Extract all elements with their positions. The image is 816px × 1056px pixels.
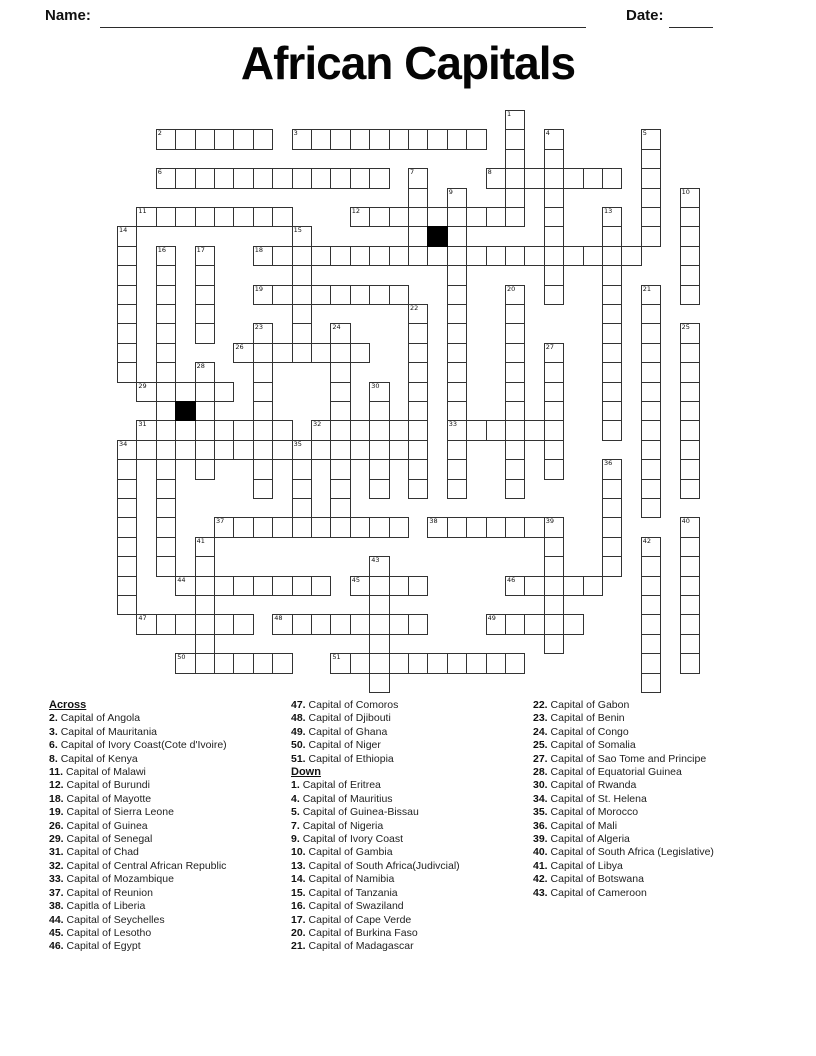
grid-cell[interactable] xyxy=(117,537,137,557)
grid-cell[interactable] xyxy=(505,149,525,169)
grid-cell[interactable] xyxy=(602,304,622,324)
grid-cell[interactable] xyxy=(583,168,603,188)
grid-cell[interactable] xyxy=(214,168,234,188)
grid-cell[interactable] xyxy=(156,323,176,343)
grid-cell[interactable]: 27 xyxy=(544,343,564,363)
grid-cell[interactable]: 22 xyxy=(408,304,428,324)
grid-cell[interactable] xyxy=(602,382,622,402)
grid-cell[interactable]: 17 xyxy=(195,246,215,266)
grid-cell[interactable] xyxy=(156,498,176,518)
grid-cell[interactable] xyxy=(544,440,564,460)
grid-cell[interactable] xyxy=(408,653,428,673)
grid-cell[interactable] xyxy=(175,614,195,634)
grid-cell[interactable]: 34 xyxy=(117,440,137,460)
grid-cell[interactable] xyxy=(195,304,215,324)
grid-cell[interactable] xyxy=(602,420,622,440)
grid-cell[interactable] xyxy=(117,556,137,576)
grid-cell[interactable] xyxy=(389,440,409,460)
grid-cell[interactable] xyxy=(117,517,137,537)
grid-cell[interactable] xyxy=(156,207,176,227)
grid-cell[interactable] xyxy=(524,614,544,634)
grid-cell[interactable] xyxy=(505,343,525,363)
grid-cell[interactable] xyxy=(272,517,292,537)
grid-cell[interactable] xyxy=(408,129,428,149)
grid-cell[interactable] xyxy=(214,614,234,634)
grid-cell[interactable]: 9 xyxy=(447,188,467,208)
grid-cell[interactable] xyxy=(447,459,467,479)
grid-cell[interactable]: 19 xyxy=(253,285,273,305)
grid-cell[interactable]: 24 xyxy=(330,323,350,343)
grid-cell[interactable] xyxy=(389,653,409,673)
grid-cell[interactable] xyxy=(427,653,447,673)
grid-cell[interactable] xyxy=(350,420,370,440)
grid-cell[interactable] xyxy=(447,401,467,421)
grid-cell[interactable]: 31 xyxy=(136,420,156,440)
grid-cell[interactable] xyxy=(156,459,176,479)
grid-cell[interactable] xyxy=(195,285,215,305)
grid-cell[interactable] xyxy=(680,595,700,615)
grid-cell[interactable] xyxy=(563,168,583,188)
grid-cell[interactable] xyxy=(447,362,467,382)
grid-cell[interactable] xyxy=(680,479,700,499)
grid-cell[interactable] xyxy=(583,576,603,596)
grid-cell[interactable] xyxy=(350,285,370,305)
grid-cell[interactable] xyxy=(602,362,622,382)
grid-cell[interactable] xyxy=(544,285,564,305)
grid-cell[interactable] xyxy=(505,207,525,227)
grid-cell[interactable] xyxy=(350,653,370,673)
grid-cell[interactable] xyxy=(253,576,273,596)
grid-cell[interactable] xyxy=(641,498,661,518)
grid-cell[interactable] xyxy=(447,440,467,460)
grid-cell[interactable] xyxy=(311,614,331,634)
grid-cell[interactable]: 46 xyxy=(505,576,525,596)
grid-cell[interactable] xyxy=(680,285,700,305)
grid-cell[interactable] xyxy=(563,576,583,596)
grid-cell[interactable] xyxy=(641,382,661,402)
grid-cell[interactable] xyxy=(175,420,195,440)
grid-cell[interactable] xyxy=(680,653,700,673)
grid-cell[interactable] xyxy=(156,265,176,285)
grid-cell[interactable] xyxy=(292,265,312,285)
grid-cell[interactable] xyxy=(408,401,428,421)
grid-cell[interactable] xyxy=(330,168,350,188)
grid-cell[interactable]: 32 xyxy=(311,420,331,440)
grid-cell[interactable] xyxy=(524,517,544,537)
grid-cell[interactable] xyxy=(272,207,292,227)
grid-cell[interactable] xyxy=(505,323,525,343)
grid-cell[interactable] xyxy=(680,207,700,227)
grid-cell[interactable] xyxy=(195,323,215,343)
grid-cell[interactable] xyxy=(544,401,564,421)
grid-cell[interactable] xyxy=(369,285,389,305)
grid-cell[interactable] xyxy=(117,246,137,266)
grid-cell[interactable] xyxy=(524,420,544,440)
grid-cell[interactable] xyxy=(505,382,525,402)
grid-cell[interactable] xyxy=(233,420,253,440)
grid-cell[interactable] xyxy=(117,362,137,382)
grid-cell[interactable] xyxy=(486,517,506,537)
grid-cell[interactable] xyxy=(505,401,525,421)
grid-cell[interactable] xyxy=(641,673,661,693)
grid-cell[interactable] xyxy=(369,420,389,440)
grid-cell[interactable] xyxy=(505,168,525,188)
grid-cell[interactable]: 49 xyxy=(486,614,506,634)
grid-cell[interactable] xyxy=(272,168,292,188)
grid-cell[interactable] xyxy=(156,614,176,634)
grid-cell[interactable] xyxy=(292,459,312,479)
grid-cell[interactable] xyxy=(641,323,661,343)
grid-cell[interactable] xyxy=(292,614,312,634)
grid-cell[interactable] xyxy=(602,498,622,518)
grid-cell[interactable] xyxy=(641,401,661,421)
grid-cell[interactable]: 37 xyxy=(214,517,234,537)
grid-cell[interactable] xyxy=(195,129,215,149)
grid-cell[interactable] xyxy=(680,634,700,654)
grid-cell[interactable] xyxy=(641,614,661,634)
grid-cell[interactable] xyxy=(233,207,253,227)
grid-cell[interactable]: 25 xyxy=(680,323,700,343)
grid-cell[interactable]: 8 xyxy=(486,168,506,188)
grid-cell[interactable] xyxy=(641,440,661,460)
grid-cell[interactable] xyxy=(156,362,176,382)
grid-cell[interactable] xyxy=(214,420,234,440)
grid-cell[interactable] xyxy=(292,168,312,188)
grid-cell[interactable] xyxy=(195,420,215,440)
grid-cell[interactable] xyxy=(233,168,253,188)
grid-cell[interactable] xyxy=(233,517,253,537)
grid-cell[interactable]: 41 xyxy=(195,537,215,557)
grid-cell[interactable] xyxy=(389,207,409,227)
grid-cell[interactable] xyxy=(680,614,700,634)
grid-cell[interactable] xyxy=(253,479,273,499)
grid-cell[interactable] xyxy=(408,614,428,634)
grid-cell[interactable]: 11 xyxy=(136,207,156,227)
grid-cell[interactable] xyxy=(466,246,486,266)
grid-cell[interactable] xyxy=(330,420,350,440)
grid-cell[interactable] xyxy=(369,653,389,673)
grid-cell[interactable] xyxy=(272,420,292,440)
grid-cell[interactable] xyxy=(544,595,564,615)
grid-cell[interactable]: 6 xyxy=(156,168,176,188)
grid-cell[interactable] xyxy=(602,401,622,421)
grid-cell[interactable] xyxy=(369,479,389,499)
grid-cell[interactable] xyxy=(117,343,137,363)
grid-cell[interactable] xyxy=(447,285,467,305)
grid-cell[interactable] xyxy=(195,440,215,460)
grid-cell[interactable] xyxy=(447,479,467,499)
grid-cell[interactable]: 26 xyxy=(233,343,253,363)
grid-cell[interactable] xyxy=(253,207,273,227)
grid-cell[interactable] xyxy=(330,614,350,634)
grid-cell[interactable] xyxy=(447,653,467,673)
grid-cell[interactable]: 10 xyxy=(680,188,700,208)
grid-cell[interactable] xyxy=(408,343,428,363)
grid-cell[interactable] xyxy=(117,285,137,305)
grid-cell[interactable] xyxy=(389,576,409,596)
grid-cell[interactable] xyxy=(214,576,234,596)
grid-cell[interactable]: 51 xyxy=(330,653,350,673)
grid-cell[interactable] xyxy=(195,265,215,285)
grid-cell[interactable] xyxy=(466,129,486,149)
grid-cell[interactable] xyxy=(156,440,176,460)
grid-cell[interactable]: 2 xyxy=(156,129,176,149)
grid-cell[interactable] xyxy=(292,304,312,324)
grid-cell[interactable]: 13 xyxy=(602,207,622,227)
grid-cell[interactable] xyxy=(408,323,428,343)
grid-cell[interactable] xyxy=(311,517,331,537)
grid-cell[interactable] xyxy=(680,343,700,363)
grid-cell[interactable] xyxy=(602,343,622,363)
grid-cell[interactable] xyxy=(641,459,661,479)
grid-cell[interactable] xyxy=(544,576,564,596)
grid-cell[interactable] xyxy=(466,420,486,440)
grid-cell[interactable] xyxy=(214,440,234,460)
grid-cell[interactable] xyxy=(214,207,234,227)
grid-cell[interactable] xyxy=(350,614,370,634)
grid-cell[interactable] xyxy=(156,479,176,499)
grid-cell[interactable] xyxy=(680,420,700,440)
grid-cell[interactable] xyxy=(253,129,273,149)
grid-cell[interactable] xyxy=(369,634,389,654)
grid-cell[interactable] xyxy=(447,517,467,537)
grid-cell[interactable] xyxy=(117,304,137,324)
grid-cell[interactable] xyxy=(117,459,137,479)
grid-cell[interactable] xyxy=(330,517,350,537)
grid-cell[interactable] xyxy=(253,440,273,460)
grid-cell[interactable]: 23 xyxy=(253,323,273,343)
grid-cell[interactable] xyxy=(505,479,525,499)
grid-cell[interactable] xyxy=(156,304,176,324)
grid-cell[interactable]: 47 xyxy=(136,614,156,634)
grid-cell[interactable]: 15 xyxy=(292,226,312,246)
grid-cell[interactable] xyxy=(214,129,234,149)
grid-cell[interactable] xyxy=(272,440,292,460)
grid-cell[interactable] xyxy=(544,265,564,285)
grid-cell[interactable] xyxy=(505,517,525,537)
grid-cell[interactable] xyxy=(408,440,428,460)
grid-cell[interactable] xyxy=(447,226,467,246)
grid-cell[interactable]: 30 xyxy=(369,382,389,402)
grid-cell[interactable] xyxy=(156,420,176,440)
grid-cell[interactable] xyxy=(292,343,312,363)
grid-cell[interactable]: 33 xyxy=(447,420,467,440)
grid-cell[interactable]: 38 xyxy=(427,517,447,537)
grid-cell[interactable] xyxy=(544,382,564,402)
grid-cell[interactable] xyxy=(292,576,312,596)
grid-cell[interactable] xyxy=(330,401,350,421)
grid-cell[interactable] xyxy=(233,440,253,460)
grid-cell[interactable] xyxy=(544,614,564,634)
grid-cell[interactable] xyxy=(156,537,176,557)
grid-cell[interactable] xyxy=(505,440,525,460)
grid-cell[interactable] xyxy=(641,576,661,596)
grid-cell[interactable] xyxy=(156,517,176,537)
grid-cell[interactable] xyxy=(641,149,661,169)
grid-cell[interactable] xyxy=(602,537,622,557)
grid-cell[interactable] xyxy=(505,653,525,673)
grid-cell[interactable] xyxy=(369,168,389,188)
grid-cell[interactable] xyxy=(292,246,312,266)
grid-cell[interactable] xyxy=(117,498,137,518)
grid-cell[interactable] xyxy=(602,479,622,499)
grid-cell[interactable] xyxy=(408,362,428,382)
grid-cell[interactable] xyxy=(253,168,273,188)
grid-cell[interactable] xyxy=(330,440,350,460)
grid-cell[interactable] xyxy=(602,226,622,246)
grid-cell[interactable] xyxy=(466,517,486,537)
grid-cell[interactable] xyxy=(369,459,389,479)
grid-cell[interactable]: 1 xyxy=(505,110,525,130)
grid-cell[interactable] xyxy=(195,459,215,479)
grid-cell[interactable] xyxy=(641,226,661,246)
grid-cell[interactable] xyxy=(408,420,428,440)
grid-cell[interactable] xyxy=(369,401,389,421)
grid-cell[interactable] xyxy=(330,285,350,305)
grid-cell[interactable] xyxy=(195,382,215,402)
grid-cell[interactable] xyxy=(427,129,447,149)
grid-cell[interactable] xyxy=(641,343,661,363)
grid-cell[interactable] xyxy=(330,498,350,518)
grid-cell[interactable] xyxy=(272,285,292,305)
grid-cell[interactable] xyxy=(641,304,661,324)
grid-cell[interactable] xyxy=(292,498,312,518)
grid-cell[interactable] xyxy=(680,401,700,421)
grid-cell[interactable] xyxy=(680,362,700,382)
grid-cell[interactable] xyxy=(330,129,350,149)
grid-cell[interactable] xyxy=(641,168,661,188)
grid-cell[interactable] xyxy=(524,576,544,596)
grid-cell[interactable] xyxy=(330,382,350,402)
grid-cell[interactable] xyxy=(330,459,350,479)
grid-cell[interactable] xyxy=(447,129,467,149)
grid-cell[interactable] xyxy=(272,246,292,266)
grid-cell[interactable]: 45 xyxy=(350,576,370,596)
grid-cell[interactable] xyxy=(253,401,273,421)
grid-cell[interactable] xyxy=(447,343,467,363)
grid-cell[interactable] xyxy=(389,285,409,305)
grid-cell[interactable] xyxy=(427,246,447,266)
grid-cell[interactable] xyxy=(330,479,350,499)
grid-cell[interactable] xyxy=(466,207,486,227)
grid-cell[interactable] xyxy=(447,265,467,285)
grid-cell[interactable] xyxy=(369,673,389,693)
grid-cell[interactable] xyxy=(311,440,331,460)
grid-cell[interactable] xyxy=(602,168,622,188)
grid-cell[interactable] xyxy=(680,265,700,285)
grid-cell[interactable] xyxy=(447,304,467,324)
grid-cell[interactable] xyxy=(544,168,564,188)
grid-cell[interactable] xyxy=(330,246,350,266)
grid-cell[interactable]: 42 xyxy=(641,537,661,557)
grid-cell[interactable] xyxy=(544,226,564,246)
grid-cell[interactable] xyxy=(602,246,622,266)
grid-cell[interactable] xyxy=(311,576,331,596)
grid-cell[interactable] xyxy=(544,556,564,576)
grid-cell[interactable] xyxy=(408,246,428,266)
grid-cell[interactable] xyxy=(272,576,292,596)
grid-cell[interactable]: 43 xyxy=(369,556,389,576)
grid-cell[interactable] xyxy=(680,556,700,576)
grid-cell[interactable]: 29 xyxy=(136,382,156,402)
grid-cell[interactable] xyxy=(621,246,641,266)
grid-cell[interactable] xyxy=(253,653,273,673)
grid-cell[interactable] xyxy=(641,362,661,382)
grid-cell[interactable] xyxy=(544,537,564,557)
grid-cell[interactable]: 16 xyxy=(156,246,176,266)
grid-cell[interactable] xyxy=(369,207,389,227)
grid-cell[interactable] xyxy=(680,459,700,479)
grid-cell[interactable] xyxy=(408,188,428,208)
grid-cell[interactable] xyxy=(214,653,234,673)
grid-cell[interactable]: 39 xyxy=(544,517,564,537)
grid-cell[interactable] xyxy=(117,265,137,285)
grid-cell[interactable] xyxy=(389,517,409,537)
grid-cell[interactable] xyxy=(195,614,215,634)
grid-cell[interactable] xyxy=(680,226,700,246)
grid-cell[interactable] xyxy=(156,382,176,402)
grid-cell[interactable] xyxy=(156,401,176,421)
grid-cell[interactable] xyxy=(544,207,564,227)
grid-cell[interactable] xyxy=(350,343,370,363)
grid-cell[interactable] xyxy=(369,614,389,634)
grid-cell[interactable] xyxy=(389,614,409,634)
grid-cell[interactable] xyxy=(369,576,389,596)
grid-cell[interactable] xyxy=(195,556,215,576)
grid-cell[interactable] xyxy=(641,188,661,208)
grid-cell[interactable] xyxy=(195,634,215,654)
grid-cell[interactable]: 21 xyxy=(641,285,661,305)
grid-cell[interactable] xyxy=(311,246,331,266)
grid-cell[interactable] xyxy=(486,246,506,266)
grid-cell[interactable] xyxy=(117,595,137,615)
grid-cell[interactable] xyxy=(641,420,661,440)
grid-cell[interactable] xyxy=(486,207,506,227)
grid-cell[interactable] xyxy=(505,304,525,324)
grid-cell[interactable] xyxy=(408,382,428,402)
grid-cell[interactable] xyxy=(505,459,525,479)
grid-cell[interactable] xyxy=(563,246,583,266)
grid-cell[interactable] xyxy=(544,634,564,654)
grid-cell[interactable] xyxy=(466,653,486,673)
grid-cell[interactable] xyxy=(641,595,661,615)
grid-cell[interactable] xyxy=(408,479,428,499)
grid-cell[interactable] xyxy=(175,168,195,188)
grid-cell[interactable] xyxy=(292,285,312,305)
grid-cell[interactable] xyxy=(680,382,700,402)
grid-cell[interactable] xyxy=(117,323,137,343)
grid-cell[interactable] xyxy=(369,129,389,149)
grid-cell[interactable]: 36 xyxy=(602,459,622,479)
grid-cell[interactable]: 7 xyxy=(408,168,428,188)
grid-cell[interactable] xyxy=(253,343,273,363)
grid-cell[interactable] xyxy=(311,168,331,188)
grid-cell[interactable] xyxy=(156,343,176,363)
grid-cell[interactable] xyxy=(292,479,312,499)
grid-cell[interactable] xyxy=(680,246,700,266)
grid-cell[interactable] xyxy=(175,440,195,460)
grid-cell[interactable] xyxy=(136,440,156,460)
grid-cell[interactable] xyxy=(175,129,195,149)
grid-cell[interactable] xyxy=(311,285,331,305)
grid-cell[interactable]: 44 xyxy=(175,576,195,596)
grid-cell[interactable]: 28 xyxy=(195,362,215,382)
grid-cell[interactable]: 48 xyxy=(272,614,292,634)
grid-cell[interactable] xyxy=(524,168,544,188)
grid-cell[interactable] xyxy=(408,207,428,227)
grid-cell[interactable] xyxy=(544,246,564,266)
grid-cell[interactable] xyxy=(117,479,137,499)
